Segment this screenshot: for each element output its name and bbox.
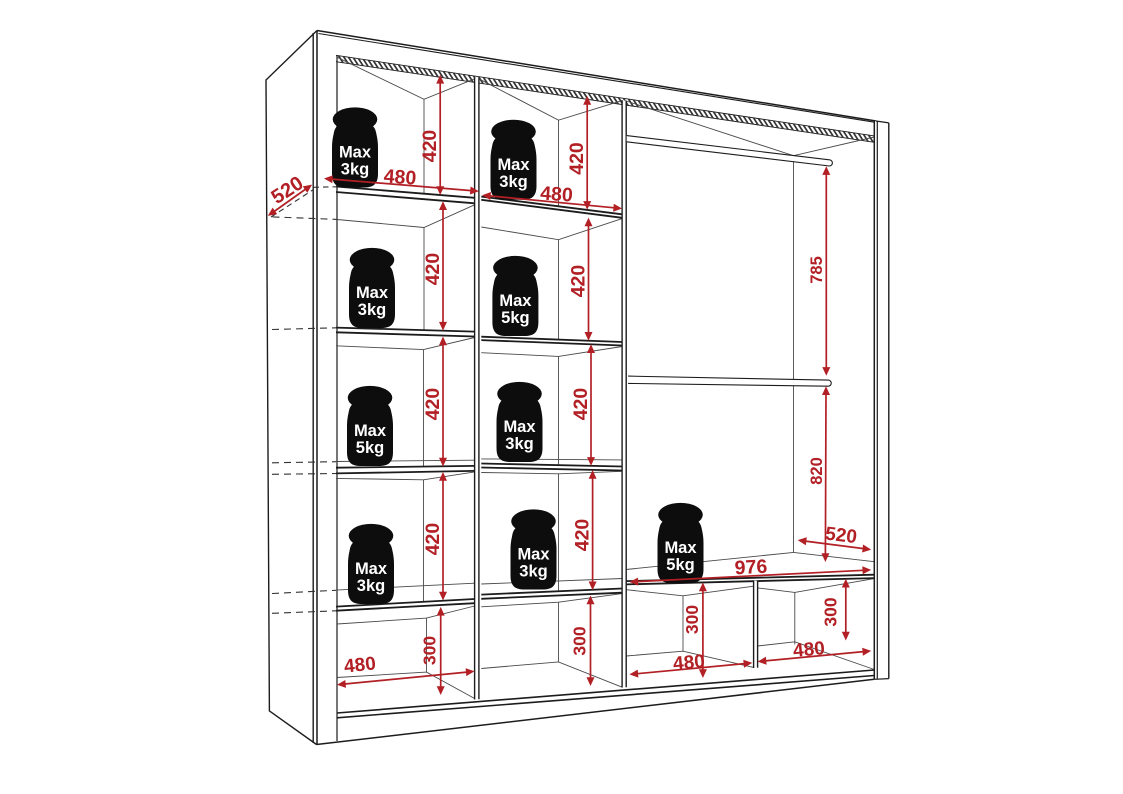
svg-text:Max: Max — [499, 292, 532, 310]
svg-text:Max: Max — [497, 156, 530, 174]
svg-text:420: 420 — [419, 130, 441, 163]
svg-text:976: 976 — [734, 556, 768, 580]
svg-text:3kg: 3kg — [358, 301, 386, 319]
svg-text:480: 480 — [539, 182, 573, 206]
svg-text:3kg: 3kg — [341, 161, 369, 179]
svg-text:420: 420 — [422, 253, 444, 286]
svg-text:3kg: 3kg — [357, 577, 385, 595]
svg-text:785: 785 — [808, 256, 826, 284]
svg-text:Max: Max — [503, 418, 536, 436]
svg-text:Max: Max — [355, 560, 388, 578]
svg-text:300: 300 — [820, 597, 840, 626]
svg-text:420: 420 — [567, 265, 589, 298]
svg-text:Max: Max — [339, 144, 372, 162]
svg-text:480: 480 — [672, 651, 705, 675]
svg-text:420: 420 — [422, 388, 444, 421]
svg-text:520: 520 — [824, 523, 858, 548]
svg-text:3kg: 3kg — [505, 435, 533, 453]
svg-text:5kg: 5kg — [666, 556, 694, 574]
svg-text:300: 300 — [682, 605, 702, 634]
svg-text:420: 420 — [422, 523, 444, 556]
svg-text:480: 480 — [792, 638, 825, 662]
svg-text:480: 480 — [343, 653, 377, 677]
svg-text:Max: Max — [354, 422, 387, 440]
svg-text:300: 300 — [570, 626, 590, 655]
svg-text:3kg: 3kg — [499, 173, 527, 191]
svg-text:300: 300 — [420, 636, 440, 665]
svg-text:480: 480 — [383, 165, 417, 189]
svg-text:Max: Max — [356, 284, 389, 302]
svg-text:420: 420 — [571, 519, 593, 552]
svg-text:5kg: 5kg — [356, 439, 384, 457]
svg-text:Max: Max — [664, 539, 697, 557]
svg-text:Max: Max — [517, 546, 550, 564]
svg-text:420: 420 — [570, 388, 592, 421]
svg-text:5kg: 5kg — [501, 309, 529, 327]
svg-text:820: 820 — [808, 457, 826, 485]
svg-text:3kg: 3kg — [519, 563, 547, 581]
svg-text:420: 420 — [566, 142, 588, 175]
